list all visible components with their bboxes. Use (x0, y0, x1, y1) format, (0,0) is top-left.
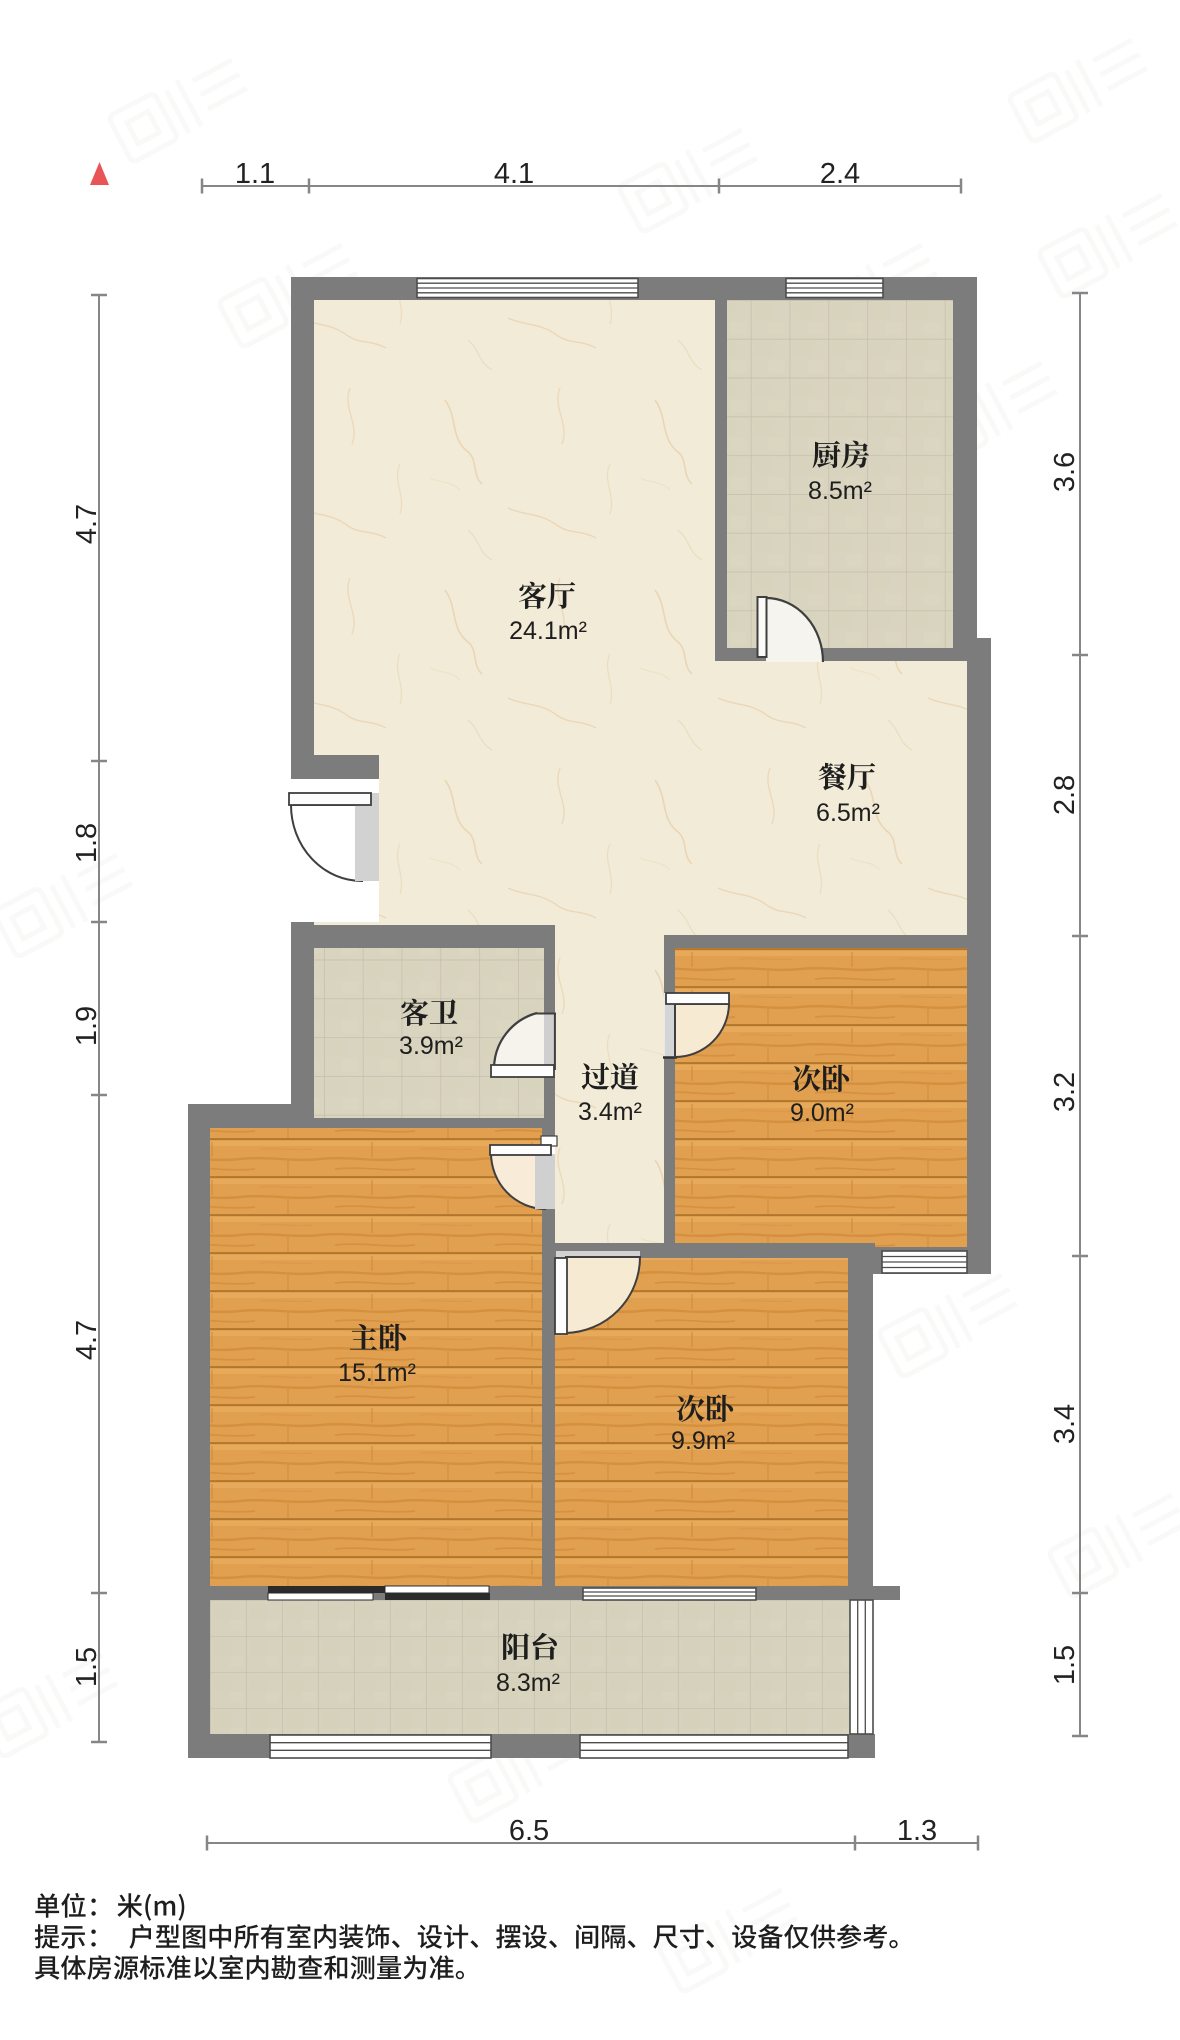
svg-text:6.5: 6.5 (509, 1815, 549, 1847)
svg-text:24.1m²: 24.1m² (509, 617, 587, 645)
svg-text:2.8: 2.8 (1049, 775, 1081, 815)
svg-text:1.5: 1.5 (71, 1647, 103, 1687)
svg-text:1.8: 1.8 (71, 823, 103, 863)
svg-text:4.7: 4.7 (71, 504, 103, 544)
svg-text:8.5m²: 8.5m² (808, 477, 872, 505)
svg-text:1.1: 1.1 (235, 158, 275, 190)
svg-text:9.0m²: 9.0m² (790, 1099, 854, 1127)
svg-text:3.6: 3.6 (1049, 452, 1081, 492)
svg-text:9.9m²: 9.9m² (671, 1427, 735, 1455)
svg-text:6.5m²: 6.5m² (816, 799, 880, 827)
svg-text:3.4m²: 3.4m² (578, 1098, 642, 1126)
svg-text:15.1m²: 15.1m² (338, 1359, 416, 1387)
svg-text:2.4: 2.4 (820, 158, 860, 190)
svg-text:3.2: 3.2 (1049, 1072, 1081, 1112)
svg-text:4.1: 4.1 (494, 158, 534, 190)
svg-text:4.7: 4.7 (71, 1320, 103, 1360)
svg-text:1.5: 1.5 (1049, 1645, 1081, 1685)
svg-text:1.3: 1.3 (897, 1815, 937, 1847)
svg-text:8.3m²: 8.3m² (496, 1669, 560, 1697)
svg-text:3.9m²: 3.9m² (399, 1032, 463, 1060)
svg-text:3.4: 3.4 (1049, 1404, 1081, 1444)
svg-text:1.9: 1.9 (71, 1006, 103, 1046)
